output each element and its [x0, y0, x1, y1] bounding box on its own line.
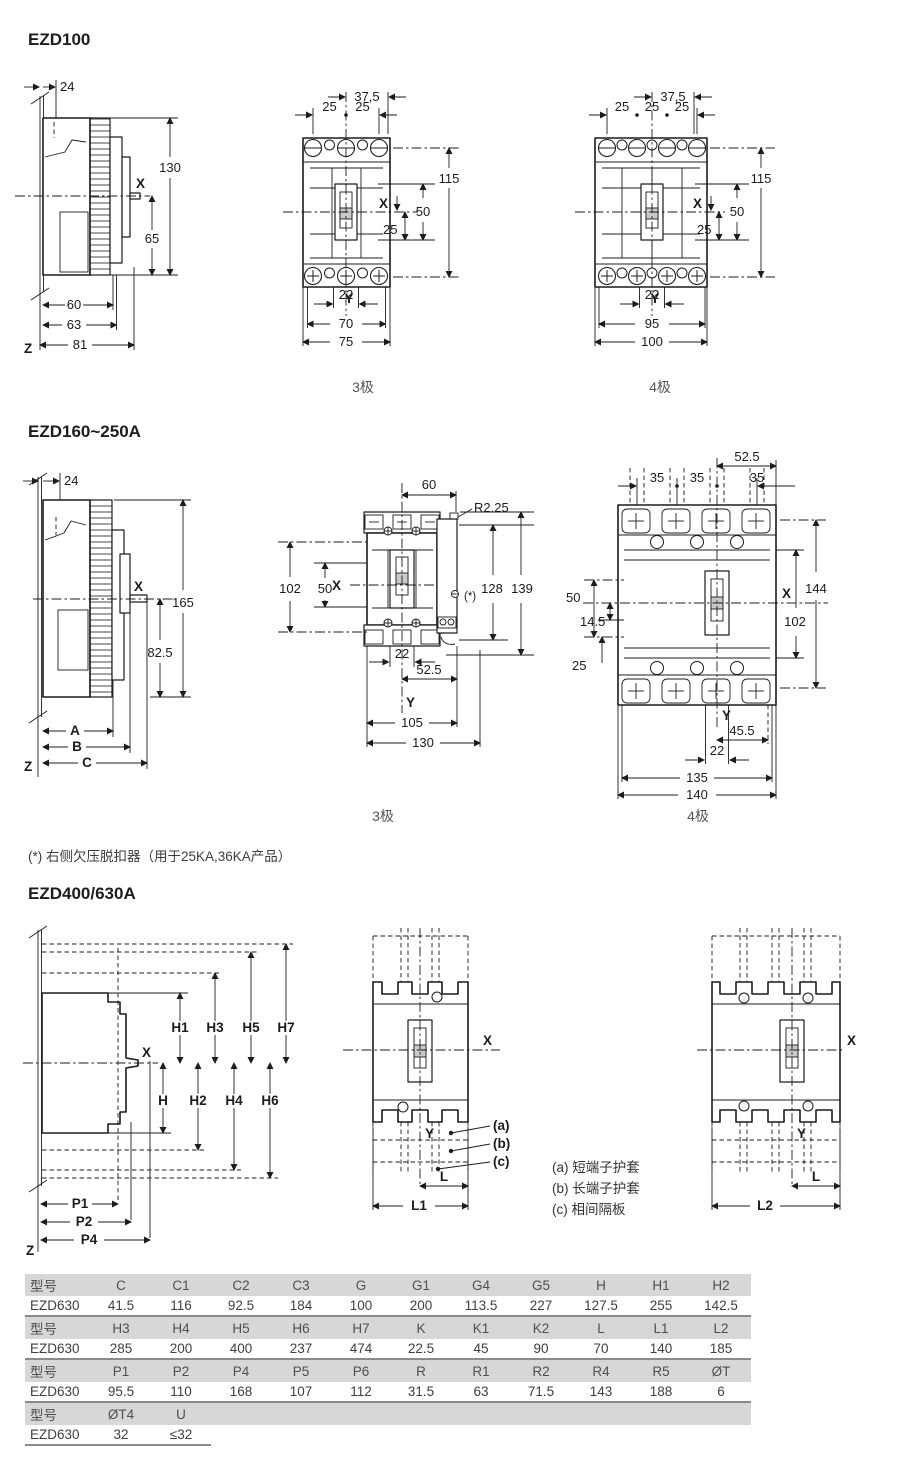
cell: 185: [691, 1339, 751, 1359]
dim-label: 115: [439, 171, 460, 186]
table-header-row: 型号CC1C2C3GG1G4G5HH1H2: [25, 1274, 751, 1296]
dim-label: L: [440, 1169, 448, 1184]
axis-label-x: X: [782, 586, 791, 601]
dim-label: 50: [416, 204, 430, 219]
cell: 92.5: [211, 1296, 271, 1316]
cell: 113.5: [451, 1296, 511, 1316]
dim-label: 65: [145, 231, 159, 246]
axis-label-z: Z: [26, 1243, 34, 1257]
cell: 100: [331, 1296, 391, 1316]
dim-label: 52.5: [734, 450, 759, 464]
cell: R5: [631, 1359, 691, 1382]
ezd400-4pole-drawing: X Y L L2: [695, 922, 865, 1222]
cell: 200: [391, 1296, 451, 1316]
cell: 型号: [25, 1316, 91, 1339]
cell: 112: [331, 1382, 391, 1402]
cell: P6: [331, 1359, 391, 1382]
cell: 31.5: [391, 1382, 451, 1402]
dim-label: H6: [261, 1093, 279, 1108]
cell: 140: [631, 1339, 691, 1359]
cell: EZD630: [25, 1339, 91, 1359]
dim-label: 25: [697, 222, 711, 237]
dim-label: 22: [395, 646, 409, 661]
dim-label: 22: [339, 287, 353, 302]
dim-label: H7: [277, 1020, 294, 1035]
ezd160-side-view-drawing: X 24 165 82.5 A B C Z: [8, 455, 238, 785]
dim-label: P4: [81, 1232, 98, 1247]
ezd160-4pole-drawing: X 52.5 35 35 35 144 102 50 14.5 25 Y 45.…: [558, 450, 843, 800]
axis-label-x: X: [136, 176, 145, 191]
dim-label: 25: [615, 99, 629, 114]
cell: 63: [451, 1382, 511, 1402]
cell: L1: [631, 1316, 691, 1339]
axis-label-y: Y: [797, 1126, 806, 1141]
dim-label: 25: [645, 99, 659, 114]
cell: G1: [391, 1274, 451, 1296]
dim-label: B: [72, 739, 82, 754]
section-title-ezd400: EZD400/630A: [28, 884, 136, 904]
axis-label-z: Z: [24, 759, 32, 774]
footnote: (*) 右侧欠压脱扣器（用于25KA,36KA产品）: [28, 845, 291, 865]
footnote-marker: (*): [464, 591, 476, 603]
cell: G4: [451, 1274, 511, 1296]
cell: [571, 1425, 631, 1445]
cell: 143: [571, 1382, 631, 1402]
cell: [331, 1402, 391, 1425]
dim-label: 35: [750, 470, 764, 485]
dim-label: 130: [159, 160, 181, 175]
dim-label: H3: [206, 1020, 224, 1035]
callout-b: (b): [493, 1136, 510, 1151]
dim-label: 75: [339, 334, 353, 349]
cell: K2: [511, 1316, 571, 1339]
cell: H1: [631, 1274, 691, 1296]
axis-label-z: Z: [24, 341, 32, 356]
ezd100-side-view-drawing: X 24 130 65 60 63 81 Z: [10, 62, 210, 362]
datasheet-page: EZD100 X 24 130 65 60 63 81 Z 37,5 25 25…: [0, 0, 900, 1457]
dim-label: 128: [481, 581, 503, 596]
dim-label: 144: [805, 581, 827, 596]
dim-label: 22: [710, 743, 724, 758]
dim-label: 102: [279, 581, 301, 596]
axis-label-x: X: [332, 578, 341, 593]
dim-label: H1: [171, 1020, 189, 1035]
caption-3pole: 3极: [283, 377, 443, 397]
dim-label: C: [82, 755, 92, 770]
cell: ≤32: [151, 1425, 211, 1445]
cell: [691, 1425, 751, 1445]
cell: 200: [151, 1339, 211, 1359]
dim-label: 25: [572, 658, 586, 673]
cell: 90: [511, 1339, 571, 1359]
cell: 184: [271, 1296, 331, 1316]
axis-label-y: Y: [722, 708, 731, 723]
cell: 474: [331, 1339, 391, 1359]
axis-label-y: Y: [406, 695, 415, 710]
cell: C: [91, 1274, 151, 1296]
cell: [331, 1425, 391, 1445]
legend-item-c: (c) 相间隔板: [552, 1199, 640, 1220]
cell: C3: [271, 1274, 331, 1296]
cell: [631, 1425, 691, 1445]
ezd400-side-view-drawing: X H1 H3 H5 H7 H H2 H4 H6 P1 P2 P4 Z: [8, 922, 308, 1257]
table-header-row: 型号ØT4U: [25, 1402, 751, 1425]
cell: U: [151, 1402, 211, 1425]
callout-c: (c): [493, 1154, 510, 1169]
dim-label: 25: [383, 222, 397, 237]
dim-label: P1: [72, 1196, 89, 1211]
table-data-row: EZD63041.511692.5184100200113.5227127.52…: [25, 1296, 751, 1316]
cell: EZD630: [25, 1382, 91, 1402]
axis-label-x: X: [483, 1033, 492, 1048]
cell: 71.5: [511, 1382, 571, 1402]
cell: 型号: [25, 1359, 91, 1382]
cell: 32: [91, 1425, 151, 1445]
dim-label: 52.5: [416, 662, 441, 677]
cell: P4: [211, 1359, 271, 1382]
cell: 400: [211, 1339, 271, 1359]
dim-label: 102: [784, 614, 806, 629]
cell: C1: [151, 1274, 211, 1296]
axis-label-x: X: [134, 579, 143, 594]
table-data-row: EZD63095.511016810711231.56371.51431886: [25, 1382, 751, 1402]
cell: [571, 1402, 631, 1425]
cell: H5: [211, 1316, 271, 1339]
cell: [391, 1402, 451, 1425]
dim-label: 135: [686, 770, 708, 785]
axis-label-x: X: [379, 196, 388, 211]
dim-label: 25: [322, 99, 336, 114]
cell: [631, 1402, 691, 1425]
dim-label: 139: [511, 581, 533, 596]
legend-item-a: (a) 短端子护套: [552, 1157, 640, 1178]
cell: G5: [511, 1274, 571, 1296]
cell: 22.5: [391, 1339, 451, 1359]
cell: L2: [691, 1316, 751, 1339]
cell: H7: [331, 1316, 391, 1339]
cell: 型号: [25, 1274, 91, 1296]
dim-label: 130: [412, 735, 434, 750]
caption-4pole: 4极: [575, 377, 745, 397]
dim-label: 14.5: [580, 614, 605, 629]
cell: R: [391, 1359, 451, 1382]
cell: 70: [571, 1339, 631, 1359]
section-title-ezd100: EZD100: [28, 30, 90, 50]
legend-item-b: (b) 长端子护套: [552, 1178, 640, 1199]
ezd160-3pole-drawing: R2.25 X (*) 102 50 60 128 139 22 52.5 Y …: [268, 455, 548, 765]
table-header-row: 型号H3H4H5H6H7KK1K2LL1L2: [25, 1316, 751, 1339]
dim-label: A: [70, 723, 80, 738]
dim-label: 24: [60, 79, 74, 94]
cell: 6: [691, 1382, 751, 1402]
dim-label: 50: [318, 581, 332, 596]
caption-3pole: 3极: [268, 806, 498, 826]
table-header-row: 型号P1P2P4P5P6RR1R2R4R5ØT: [25, 1359, 751, 1382]
dim-label: 95: [645, 316, 659, 331]
dim-label: 22: [645, 287, 659, 302]
cell: 107: [271, 1382, 331, 1402]
dim-label: L2: [757, 1198, 773, 1213]
cell: 285: [91, 1339, 151, 1359]
cell: [211, 1402, 271, 1425]
dim-label: 115: [751, 171, 772, 186]
dim-label: H4: [225, 1093, 243, 1108]
dim-label: 165: [172, 595, 194, 610]
terminal-legend: (a) 短端子护套 (b) 长端子护套 (c) 相间隔板: [552, 1157, 640, 1220]
dim-label: R2.25: [474, 500, 509, 515]
cell: 型号: [25, 1402, 91, 1425]
cell: 188: [631, 1382, 691, 1402]
cell: H4: [151, 1316, 211, 1339]
cell: 110: [151, 1382, 211, 1402]
cell: 255: [631, 1296, 691, 1316]
cell: [271, 1402, 331, 1425]
cell: K: [391, 1316, 451, 1339]
dim-label: 35: [650, 470, 664, 485]
cell: 142.5: [691, 1296, 751, 1316]
dim-label: 50: [730, 204, 744, 219]
dim-label: 25: [675, 99, 689, 114]
cell: L: [571, 1316, 631, 1339]
cell: [451, 1425, 511, 1445]
cell: P5: [271, 1359, 331, 1382]
cell: P1: [91, 1359, 151, 1382]
dim-label: H2: [189, 1093, 206, 1108]
cell: H6: [271, 1316, 331, 1339]
cell: 168: [211, 1382, 271, 1402]
dim-label: 82.5: [147, 645, 172, 660]
dim-label: 100: [641, 334, 663, 349]
cell: ØT4: [91, 1402, 151, 1425]
dim-label: 25: [355, 99, 369, 114]
cell: 45: [451, 1339, 511, 1359]
cell: K1: [451, 1316, 511, 1339]
cell: [391, 1425, 451, 1445]
dim-label: L: [812, 1169, 820, 1184]
cell: 227: [511, 1296, 571, 1316]
cell: [451, 1402, 511, 1425]
cell: [511, 1425, 571, 1445]
cell: 116: [151, 1296, 211, 1316]
dim-label: 45.5: [729, 723, 754, 738]
ezd100-4pole-drawing: 37,5 25 25 25 115 50 25 X Y 22 95 100: [575, 84, 790, 376]
dim-label: 105: [401, 715, 423, 730]
cell: 41.5: [91, 1296, 151, 1316]
cell: R1: [451, 1359, 511, 1382]
ezd400-3pole-drawing: X Y (a) (b) (c) L L1: [335, 922, 550, 1222]
cell: R2: [511, 1359, 571, 1382]
cell: G: [331, 1274, 391, 1296]
callout-a: (a): [493, 1118, 510, 1133]
cell: [511, 1402, 571, 1425]
dim-label: 35: [690, 470, 704, 485]
dim-label: L1: [411, 1198, 427, 1213]
cell: H3: [91, 1316, 151, 1339]
cell: ØT: [691, 1359, 751, 1382]
dim-label: 140: [686, 787, 708, 800]
axis-label-x: X: [142, 1045, 151, 1060]
axis-label-x: X: [847, 1033, 856, 1048]
dim-label: 24: [64, 473, 78, 488]
cell: [211, 1425, 271, 1445]
dim-label: P2: [76, 1214, 93, 1229]
dim-label: 60: [67, 297, 81, 312]
dim-label: 63: [67, 317, 81, 332]
cell: R4: [571, 1359, 631, 1382]
dim-label: 60: [422, 477, 436, 492]
cell: 237: [271, 1339, 331, 1359]
cell: [691, 1402, 751, 1425]
section-title-ezd160: EZD160~250A: [28, 422, 141, 442]
dim-label: H: [158, 1093, 168, 1108]
dimension-table: 型号CC1C2C3GG1G4G5HH1H2 EZD63041.511692.51…: [25, 1274, 751, 1446]
cell: [271, 1425, 331, 1445]
cell: C2: [211, 1274, 271, 1296]
table-data-row: EZD63032≤32: [25, 1425, 751, 1445]
caption-4pole: 4极: [558, 806, 838, 826]
cell: EZD630: [25, 1425, 91, 1445]
ezd100-3pole-drawing: 37,5 25 25 115 50 25 X Y 22 70 75: [283, 84, 478, 376]
dim-label: 50: [566, 590, 580, 605]
cell: 127.5: [571, 1296, 631, 1316]
dim-label: 81: [73, 337, 87, 352]
cell: H: [571, 1274, 631, 1296]
dim-label: 70: [339, 316, 353, 331]
cell: H2: [691, 1274, 751, 1296]
dim-label: H5: [242, 1020, 260, 1035]
axis-label-x: X: [693, 196, 702, 211]
table-data-row: EZD63028520040023747422.5459070140185: [25, 1339, 751, 1359]
cell: P2: [151, 1359, 211, 1382]
axis-label-y: Y: [425, 1126, 434, 1141]
cell: EZD630: [25, 1296, 91, 1316]
cell: 95.5: [91, 1382, 151, 1402]
